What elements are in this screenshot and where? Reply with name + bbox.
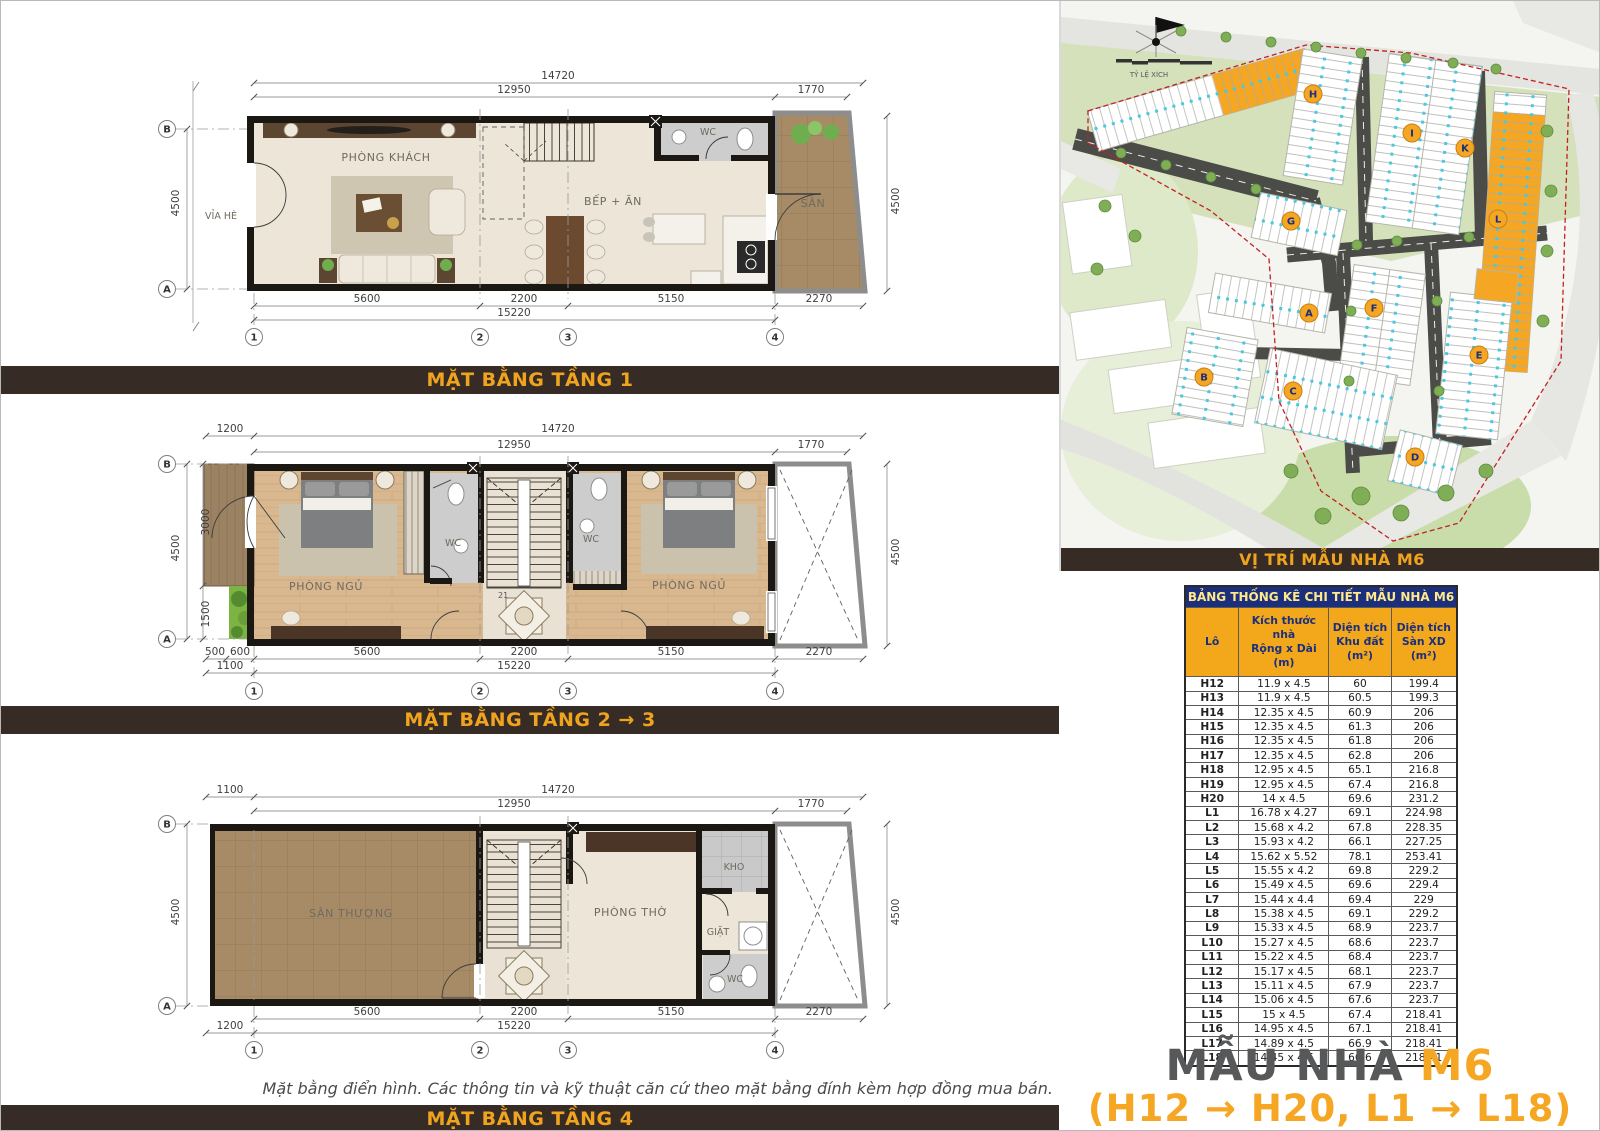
svg-text:14720: 14720	[541, 784, 574, 796]
svg-text:A: A	[163, 285, 171, 296]
page: 14720 12950 1770 4500 4500 5600 2200 515…	[0, 0, 1600, 1131]
svg-text:3: 3	[565, 333, 572, 344]
svg-text:H: H	[1309, 90, 1317, 101]
svg-text:1: 1	[251, 1046, 258, 1057]
svg-text:F: F	[1371, 304, 1378, 315]
svg-text:2200: 2200	[511, 1006, 538, 1018]
table-row: H1712.35 x 4.562.8206	[1185, 749, 1457, 763]
table-row: H1612.35 x 4.561.8206	[1185, 734, 1457, 748]
col-header-lot: Lô	[1185, 608, 1239, 677]
section-title-text: MẶT BẰNG TẦNG 4	[427, 1108, 634, 1130]
table-row: H1211.9 x 4.560199.4	[1185, 677, 1457, 691]
svg-text:B: B	[163, 820, 171, 831]
svg-text:5600: 5600	[354, 293, 381, 305]
svg-text:5150: 5150	[658, 646, 685, 658]
kitchen-island	[653, 214, 705, 244]
svg-text:4500: 4500	[890, 539, 902, 566]
table-row: H1812.95 x 4.565.1216.8	[1185, 763, 1457, 777]
svg-text:2200: 2200	[511, 293, 538, 305]
site-map-drawing: TỶ LỆ XÍCH H I K L G A F B C E D	[1061, 1, 1600, 548]
table-row: L315.93 x 4.266.1227.25	[1185, 835, 1457, 849]
room-label-living: PHÒNG KHÁCH	[341, 151, 430, 164]
washing-machine	[739, 922, 767, 950]
svg-text:4: 4	[772, 1046, 779, 1057]
room-label-bed2: PHÒNG NGỦ	[652, 578, 726, 592]
svg-text:2200: 2200	[511, 646, 538, 658]
svg-text:600: 600	[230, 646, 250, 658]
svg-text:14720: 14720	[541, 423, 574, 435]
svg-text:C: C	[1289, 387, 1296, 398]
table-row: H1512.35 x 4.561.3206	[1185, 720, 1457, 734]
table-row: L1015.27 x 4.568.6223.7	[1185, 936, 1457, 950]
dimension-label: 14720	[541, 70, 574, 82]
room-label-terrace: SÂN THƯỢNG	[309, 907, 393, 920]
table-row: H2014 x 4.569.6231.2	[1185, 792, 1457, 806]
room-label-bed1: PHÒNG NGỦ	[289, 579, 363, 593]
dining-table	[546, 216, 584, 288]
floor-plan-1-drawing: 14720 12950 1770 4500 4500 5600 2200 515…	[1, 31, 1001, 366]
room-label-wc: WC	[700, 127, 716, 138]
svg-text:A: A	[163, 635, 171, 646]
table-row: L1515 x 4.567.4218.41	[1185, 1008, 1457, 1022]
void-area	[775, 824, 865, 1006]
section-title-floor-23: MẶT BẰNG TẦNG 2 → 3	[1, 706, 1059, 734]
svg-text:12950: 12950	[497, 798, 530, 810]
room-label-kitchen: BẾP + ĂN	[584, 194, 642, 208]
svg-text:2270: 2270	[806, 1006, 833, 1018]
table-row: L1614.95 x 4.567.1218.41	[1185, 1022, 1457, 1036]
room-label-yard: SÂN	[801, 197, 826, 210]
table-row: L415.62 x 5.5278.1253.41	[1185, 849, 1457, 863]
svg-text:I: I	[1410, 129, 1414, 140]
table-row: L215.68 x 4.267.8228.35	[1185, 821, 1457, 835]
floor-plan-2-3-drawing: 21 1200 14720 12950 1770 4500 3000 1500 …	[1, 396, 1001, 706]
svg-text:1100: 1100	[217, 660, 244, 672]
table-title: BẢNG THỐNG KÊ CHI TIẾT MẪU NHÀ M6	[1185, 586, 1457, 608]
room-label-worship: PHÒNG THỜ	[594, 906, 668, 919]
floor-ornament	[499, 951, 550, 1002]
svg-text:5600: 5600	[354, 646, 381, 658]
svg-text:2270: 2270	[806, 293, 833, 305]
stairs	[524, 123, 594, 161]
svg-text:3: 3	[565, 687, 572, 698]
svg-text:4500: 4500	[890, 899, 902, 926]
brand-footer: MẪU NHÀ M6 (H12 → H20, L1 → L18)	[1059, 1043, 1600, 1129]
room-label-wc2: WC	[583, 534, 599, 545]
table-row: L1315.11 x 4.567.9223.7	[1185, 979, 1457, 993]
table-row: L815.38 x 4.569.1229.2	[1185, 907, 1457, 921]
svg-text:4500: 4500	[170, 899, 182, 926]
desk-2	[646, 626, 764, 639]
svg-text:2: 2	[477, 333, 484, 344]
section-title-floor-4: MẶT BẰNG TẦNG 4	[1, 1105, 1059, 1131]
brand-title: MẪU NHÀ M6	[1059, 1043, 1600, 1089]
svg-text:4500: 4500	[170, 535, 182, 562]
armchair	[429, 189, 465, 235]
section-title-text: MẶT BẰNG TẦNG 1	[427, 369, 634, 391]
table-row: L1115.22 x 4.568.4223.7	[1185, 950, 1457, 964]
table-row: L715.44 x 4.469.4229	[1185, 892, 1457, 906]
table-header-row: Lô Kích thước nhàRộng x Dài (m) Diện tíc…	[1185, 608, 1457, 677]
svg-text:1200: 1200	[217, 423, 244, 435]
site-map: TỶ LỆ XÍCH H I K L G A F B C E D	[1059, 1, 1600, 548]
table-row: H1912.95 x 4.567.4216.8	[1185, 777, 1457, 791]
svg-text:4: 4	[772, 333, 779, 344]
svg-text:1770: 1770	[798, 439, 825, 451]
svg-text:5600: 5600	[354, 1006, 381, 1018]
col-header-floor-area: Diện tíchSàn XD (m²)	[1391, 608, 1457, 677]
svg-text:1770: 1770	[798, 798, 825, 810]
svg-text:5150: 5150	[658, 293, 685, 305]
room-label-wc1: WC	[445, 538, 461, 549]
dimension-label: 4500	[170, 190, 182, 217]
svg-text:12950: 12950	[497, 439, 530, 451]
void-area	[775, 464, 865, 646]
table-row: H1311.9 x 4.560.5199.3	[1185, 691, 1457, 705]
svg-text:3: 3	[565, 1046, 572, 1057]
room-label-laundry: GIẶT	[707, 926, 730, 938]
map-title-bar: VỊ TRÍ MẪU NHÀ M6	[1059, 548, 1600, 571]
svg-text:A: A	[1305, 309, 1313, 320]
dimension-label: 4500	[890, 188, 902, 215]
svg-text:15220: 15220	[497, 660, 530, 672]
svg-text:21: 21	[498, 591, 508, 600]
svg-text:15220: 15220	[497, 307, 530, 319]
svg-text:E: E	[1476, 351, 1483, 362]
svg-text:L: L	[1495, 215, 1502, 226]
room-label-sidewalk: VỈA HÈ	[205, 210, 237, 222]
table-row: L915.33 x 4.568.9223.7	[1185, 921, 1457, 935]
dimension-label: 1770	[798, 84, 825, 96]
svg-text:1200: 1200	[217, 1020, 244, 1032]
svg-text:2270: 2270	[806, 646, 833, 658]
col-header-land-area: Diện tíchKhu đất (m²)	[1329, 608, 1391, 677]
svg-text:3000: 3000	[200, 509, 212, 536]
table-body: H1211.9 x 4.560199.4H1311.9 x 4.560.5199…	[1185, 677, 1457, 1066]
altar-cabinet	[586, 832, 696, 852]
svg-text:G: G	[1287, 217, 1295, 228]
footnote: Mặt bằng điển hình. Các thông tin và kỹ …	[1, 1079, 1053, 1098]
svg-text:1100: 1100	[217, 784, 244, 796]
section-title-text: MẶT BẰNG TẦNG 2 → 3	[404, 709, 655, 731]
svg-text:B: B	[163, 125, 171, 136]
svg-text:A: A	[163, 1002, 171, 1013]
section-title-floor-1: MẶT BẰNG TẦNG 1	[1, 366, 1059, 394]
svg-text:15220: 15220	[497, 1020, 530, 1032]
spec-table: BẢNG THỐNG KÊ CHI TIẾT MẪU NHÀ M6 Lô Kíc…	[1184, 585, 1458, 1067]
storage-floor	[701, 830, 768, 892]
dimension-label: 12950	[497, 84, 530, 96]
floor-plan-4-drawing: 1100 14720 12950 1770 4500 4500 5600 220…	[1, 736, 1001, 1081]
desk-1	[271, 626, 401, 639]
svg-text:5150: 5150	[658, 1006, 685, 1018]
table-row: L1415.06 x 4.567.6223.7	[1185, 993, 1457, 1007]
svg-text:2: 2	[477, 687, 484, 698]
svg-text:1: 1	[251, 687, 258, 698]
svg-text:2: 2	[477, 1046, 484, 1057]
table-row: L116.78 x 4.2769.1224.98	[1185, 806, 1457, 820]
brand-model: M6	[1420, 1041, 1495, 1091]
table-row: L1215.17 x 4.568.1223.7	[1185, 964, 1457, 978]
svg-text:4: 4	[772, 687, 779, 698]
svg-text:B: B	[1200, 373, 1208, 384]
table-row: L515.55 x 4.269.8229.2	[1185, 864, 1457, 878]
brand-range: (H12 → H20, L1 → L18)	[1059, 1089, 1600, 1129]
scale-label: TỶ LỆ XÍCH	[1129, 70, 1168, 79]
table-row: L615.49 x 4.569.6229.4	[1185, 878, 1457, 892]
svg-text:1: 1	[251, 333, 258, 344]
svg-text:D: D	[1411, 453, 1419, 464]
wardrobe	[404, 471, 424, 574]
map-title-text: VỊ TRÍ MẪU NHÀ M6	[1239, 550, 1425, 569]
table-row: H1412.35 x 4.560.9206	[1185, 705, 1457, 719]
col-header-size: Kích thước nhàRộng x Dài (m)	[1239, 608, 1329, 677]
room-label-wc: WC	[727, 974, 743, 985]
svg-text:1500: 1500	[200, 601, 212, 628]
svg-text:500: 500	[205, 646, 225, 658]
room-label-storage: KHO	[724, 862, 745, 873]
svg-text:B: B	[163, 460, 171, 471]
svg-text:K: K	[1461, 144, 1470, 155]
